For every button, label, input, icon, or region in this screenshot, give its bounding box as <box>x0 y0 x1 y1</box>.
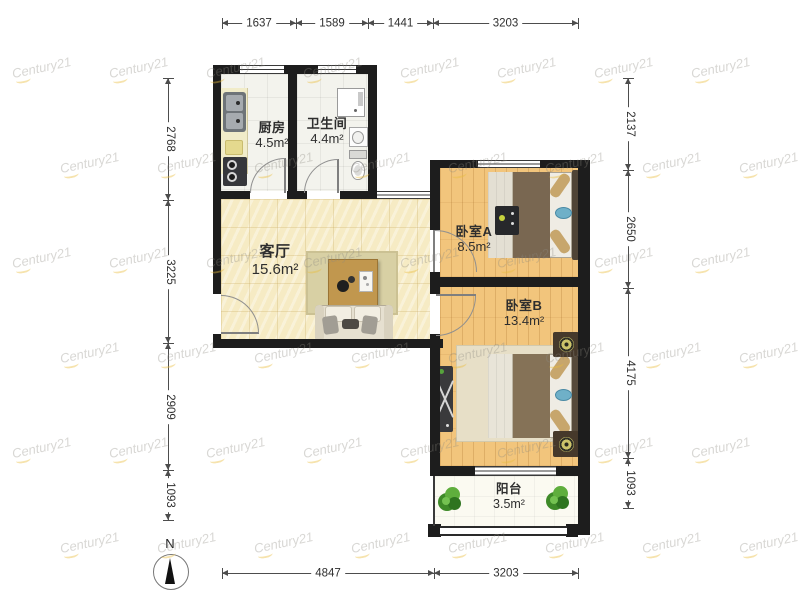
bed-a-cushion <box>555 207 572 219</box>
balcony-post <box>566 524 578 537</box>
nightstand-lamp <box>559 337 574 352</box>
floor-plan: 厨房 4.5m² 卫生间 4.4m² 客厅 15.6m² 卧室A 8.5m² 卧… <box>0 0 800 600</box>
room-name: 卧室A <box>436 224 512 239</box>
dimension-left-3: 1093 <box>168 470 169 520</box>
dimension-value: 3203 <box>489 18 523 30</box>
watermark-swoosh-icon <box>645 360 661 370</box>
watermark: Century21 <box>11 54 74 85</box>
watermark-swoosh-icon <box>257 550 273 560</box>
stove-burner <box>227 172 237 182</box>
dimension-left-1: 3225 <box>168 200 169 343</box>
dimension-right-3: 1093 <box>628 458 629 508</box>
watermark: Century21 <box>59 149 122 180</box>
dim-tick <box>578 18 579 29</box>
dimension-value: 2768 <box>163 122 175 156</box>
nightstand-lamp <box>559 437 574 452</box>
tablet-dot <box>511 212 514 215</box>
watermark: Century21 <box>593 244 656 275</box>
watermark: Century21 <box>641 149 704 180</box>
plant <box>544 485 572 513</box>
sink-drain <box>236 101 240 105</box>
watermark-swoosh-icon <box>15 265 31 275</box>
serving-tray <box>359 271 373 292</box>
room-area: 3.5m² <box>471 497 547 512</box>
dim-arrowhead-icon <box>433 20 439 26</box>
room-label-bathroom: 卫生间 4.4m² <box>289 116 365 147</box>
kitchen-window <box>240 65 284 74</box>
dimension-left-0: 2768 <box>168 78 169 200</box>
rack-dot <box>446 424 449 427</box>
room-area: 15.6m² <box>237 261 313 279</box>
dimension-right-2: 4175 <box>628 288 629 458</box>
dimension-value: 4847 <box>311 568 345 580</box>
washing-machine-knob <box>354 109 357 112</box>
sink-basin <box>226 95 243 111</box>
watermark: Century21 <box>302 434 365 465</box>
dim-arrowhead-icon <box>625 170 631 176</box>
room-area: 13.4m² <box>486 313 562 328</box>
watermark-swoosh-icon <box>63 170 79 180</box>
tablet-dot <box>499 215 505 221</box>
watermark-swoosh-icon <box>742 550 758 560</box>
bed-b-duvet <box>513 354 550 438</box>
dimension-left-2: 2909 <box>168 343 169 470</box>
watermark-swoosh-icon <box>694 265 710 275</box>
watermark-swoosh-icon <box>742 360 758 370</box>
room-area: 4.4m² <box>289 131 365 146</box>
dimension-top-3: 3203 <box>433 23 578 24</box>
teapot <box>337 280 349 292</box>
dim-arrowhead-icon <box>165 200 171 206</box>
watermark: Century21 <box>59 339 122 370</box>
plant-foliage <box>448 497 461 510</box>
stove-burner <box>227 160 237 170</box>
watermark-swoosh-icon <box>15 75 31 85</box>
watermark: Century21 <box>593 54 656 85</box>
watermark: Century21 <box>108 54 171 85</box>
sofa-pillow <box>361 315 378 335</box>
room-name: 阳台 <box>471 482 547 497</box>
dimension-value: 1441 <box>384 18 418 30</box>
dim-tick <box>578 568 579 579</box>
watermark: Century21 <box>690 434 753 465</box>
watermark-swoosh-icon <box>112 75 128 85</box>
dimension-bottom-0: 4847 <box>222 573 434 574</box>
watermark: Century21 <box>690 244 753 275</box>
watermark-swoosh-icon <box>354 360 370 370</box>
watermark: Century21 <box>205 434 268 465</box>
room-label-bedroom-a: 卧室A 8.5m² <box>436 224 512 255</box>
watermark-swoosh-icon <box>548 550 564 560</box>
watermark-swoosh-icon <box>597 455 613 465</box>
watermark-swoosh-icon <box>257 360 273 370</box>
wall-balcony-stub-right <box>556 466 578 476</box>
watermark-swoosh-icon <box>354 550 370 560</box>
living-room-window <box>377 191 430 199</box>
toilet-seat <box>354 165 362 176</box>
wall-mid-horizontal <box>213 191 377 199</box>
room-label-living: 客厅 15.6m² <box>237 243 313 278</box>
dimension-value: 2137 <box>623 107 635 141</box>
room-name: 卫生间 <box>289 116 365 131</box>
entry-door-opening <box>213 294 221 334</box>
balcony-railing <box>440 526 567 536</box>
dim-arrowhead-icon <box>165 78 171 84</box>
dim-arrowhead-icon <box>165 343 171 349</box>
room-area: 8.5m² <box>436 239 512 254</box>
watermark-swoosh-icon <box>451 550 467 560</box>
dimension-top-2: 1441 <box>368 23 433 24</box>
watermark-swoosh-icon <box>403 455 419 465</box>
dimension-value: 1093 <box>163 478 175 512</box>
sofa-pillow <box>322 315 339 335</box>
room-name: 卧室B <box>486 298 562 313</box>
dimension-right-1: 2650 <box>628 170 629 288</box>
bathroom-window <box>318 65 356 74</box>
watermark-swoosh-icon <box>694 455 710 465</box>
dim-arrowhead-icon <box>296 20 302 26</box>
dim-arrowhead-icon <box>625 458 631 464</box>
dim-arrowhead-icon <box>625 288 631 294</box>
dimension-right-0: 2137 <box>628 78 629 170</box>
dim-arrowhead-icon <box>368 20 374 26</box>
watermark-swoosh-icon <box>63 550 79 560</box>
balcony-side-rail <box>433 476 435 526</box>
watermark-swoosh-icon <box>112 455 128 465</box>
wall-bedroom-divider <box>430 277 590 287</box>
sofa-armrest <box>384 305 393 341</box>
dimension-top-0: 1637 <box>222 23 296 24</box>
dim-arrowhead-icon <box>434 570 440 576</box>
room-label-bedroom-b: 卧室B 13.4m² <box>486 298 562 329</box>
watermark: Century21 <box>593 434 656 465</box>
watermark-swoosh-icon <box>209 455 225 465</box>
room-label-balcony: 阳台 3.5m² <box>471 482 547 512</box>
watermark: Century21 <box>108 434 171 465</box>
watermark: Century21 <box>253 529 316 560</box>
watermark: Century21 <box>11 434 74 465</box>
watermark-swoosh-icon <box>306 455 322 465</box>
dim-tick <box>163 520 174 521</box>
dimension-top-1: 1589 <box>296 23 368 24</box>
dimension-value: 1093 <box>623 466 635 500</box>
compass-needle-icon <box>165 558 175 584</box>
bed-b-cushion <box>555 389 572 401</box>
washing-machine-panel <box>358 92 363 106</box>
watermark-swoosh-icon <box>403 75 419 85</box>
dimension-value: 4175 <box>623 356 635 390</box>
dimension-value: 2650 <box>623 212 635 246</box>
watermark: Century21 <box>641 529 704 560</box>
tray-item <box>363 276 367 280</box>
watermark: Century21 <box>108 244 171 275</box>
compass-north-label: N <box>156 536 184 551</box>
dimension-value: 3203 <box>489 568 523 580</box>
bedroom-a-window <box>478 160 540 168</box>
plant <box>436 486 464 514</box>
watermark: Century21 <box>350 529 413 560</box>
plant-foliage <box>556 496 569 509</box>
watermark: Century21 <box>11 244 74 275</box>
watermark-swoosh-icon <box>645 170 661 180</box>
watermark: Century21 <box>399 54 462 85</box>
plant-foliage <box>442 497 450 505</box>
watermark-swoosh-icon <box>112 265 128 275</box>
dim-arrowhead-icon <box>625 78 631 84</box>
dimension-value: 2909 <box>163 390 175 424</box>
watermark: Century21 <box>496 54 559 85</box>
dimension-value: 1589 <box>315 18 349 30</box>
wall-living-bottom <box>213 339 443 348</box>
wall-bath-right <box>368 74 377 199</box>
dimension-bottom-1: 3203 <box>434 573 578 574</box>
wall-balcony-stub-left <box>430 466 475 476</box>
room-name: 客厅 <box>237 243 313 261</box>
watermark-swoosh-icon <box>597 75 613 85</box>
watermark-swoosh-icon <box>15 455 31 465</box>
watermark: Century21 <box>641 339 704 370</box>
dim-arrowhead-icon <box>222 20 228 26</box>
teacup <box>348 276 355 283</box>
watermark: Century21 <box>738 529 800 560</box>
watermark: Century21 <box>690 54 753 85</box>
watermark-swoosh-icon <box>694 75 710 85</box>
watermark-swoosh-icon <box>645 550 661 560</box>
watermark: Century21 <box>59 529 122 560</box>
dim-arrowhead-icon <box>222 570 228 576</box>
bed-b-foot-blanket <box>488 354 513 438</box>
balcony-sliding-door <box>475 466 556 476</box>
plant-foliage <box>550 496 558 504</box>
watermark: Century21 <box>738 339 800 370</box>
dim-tick <box>623 508 634 509</box>
watermark-swoosh-icon <box>597 265 613 275</box>
sofa-tray <box>342 319 359 329</box>
watermark: Century21 <box>738 149 800 180</box>
dimension-value: 1637 <box>242 18 276 30</box>
watermark-swoosh-icon <box>742 170 758 180</box>
dimension-value: 3225 <box>163 255 175 289</box>
dim-arrowhead-icon <box>165 470 171 476</box>
toilet-tank <box>349 150 367 159</box>
tray-item <box>366 283 369 286</box>
watermark-swoosh-icon <box>63 360 79 370</box>
watermark-swoosh-icon <box>500 75 516 85</box>
wall-right <box>578 160 590 535</box>
